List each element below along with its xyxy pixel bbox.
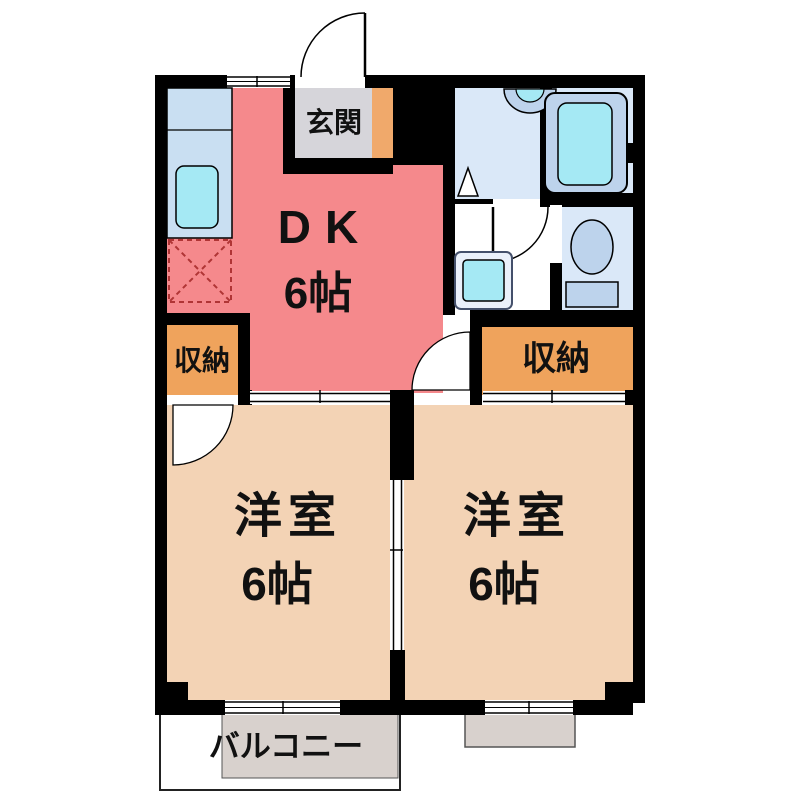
toilet-door-opening <box>550 205 562 263</box>
sliding-door-dk-room-left <box>250 390 390 404</box>
room-left-size-label: 6帖 <box>241 558 313 610</box>
shoe-cabinet <box>372 88 393 158</box>
washing-machine-space-icon <box>455 252 512 309</box>
kitchen-sink-icon <box>176 166 218 228</box>
closet-left-label: 収納 <box>174 344 230 376</box>
kitchen-window <box>227 75 290 88</box>
dk-size-label: 6帖 <box>284 269 352 318</box>
closet-right-label: 収納 <box>522 340 590 378</box>
bathtub-icon <box>545 93 627 193</box>
window-room-right <box>485 700 573 715</box>
western-room-right <box>404 405 633 700</box>
room-right-size-label: 6帖 <box>468 558 540 610</box>
entrance-door <box>295 13 365 88</box>
sliding-partition-between-rooms <box>390 480 404 650</box>
floor-plan: 玄関 DK 6帖 収納 収納 洋室 6帖 洋室 6帖 バルコニー <box>0 0 800 800</box>
sliding-door-closet-right <box>483 390 625 404</box>
balcony-label: バルコニー <box>209 729 363 764</box>
window-room-left <box>225 700 340 715</box>
room-right-label: 洋室 <box>463 490 571 543</box>
room-left-label: 洋室 <box>234 490 342 543</box>
dk-label: DK <box>278 201 372 253</box>
entrance-label: 玄関 <box>306 106 362 138</box>
